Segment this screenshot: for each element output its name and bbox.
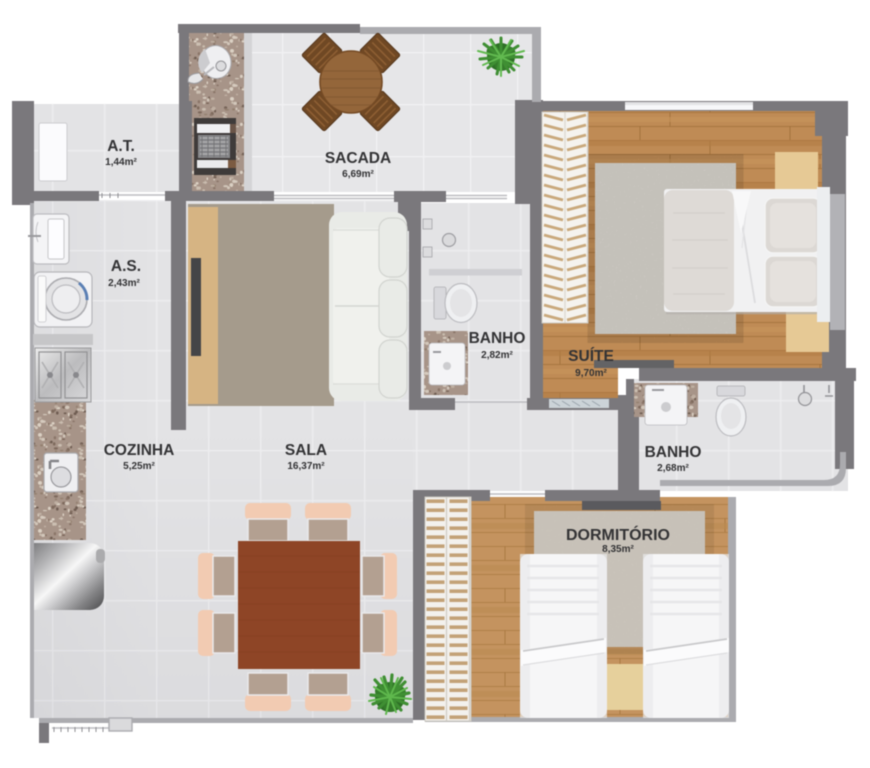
svg-text:2,68m²: 2,68m² [657, 463, 689, 474]
svg-text:8,35m²: 8,35m² [602, 544, 634, 555]
svg-text:2,43m²: 2,43m² [108, 278, 140, 289]
svg-text:5,25m²: 5,25m² [123, 461, 155, 472]
svg-text:SUÍTE: SUÍTE [568, 348, 614, 365]
svg-text:BANHO: BANHO [469, 330, 526, 347]
svg-text:2,82m²: 2,82m² [481, 350, 513, 361]
svg-text:SACADA: SACADA [325, 150, 391, 167]
svg-text:6,69m²: 6,69m² [342, 169, 374, 180]
svg-text:DORMITÓRIO: DORMITÓRIO [566, 525, 670, 544]
svg-text:16,37m²: 16,37m² [287, 461, 325, 472]
svg-text:9,70m²: 9,70m² [575, 368, 607, 379]
svg-text:COZINHA: COZINHA [104, 442, 175, 459]
svg-text:A.T.: A.T. [107, 138, 135, 155]
svg-text:1,44m²: 1,44m² [105, 157, 137, 168]
svg-text:A.S.: A.S. [111, 258, 141, 275]
svg-text:SALA: SALA [285, 442, 327, 459]
svg-text:BANHO: BANHO [645, 444, 702, 461]
